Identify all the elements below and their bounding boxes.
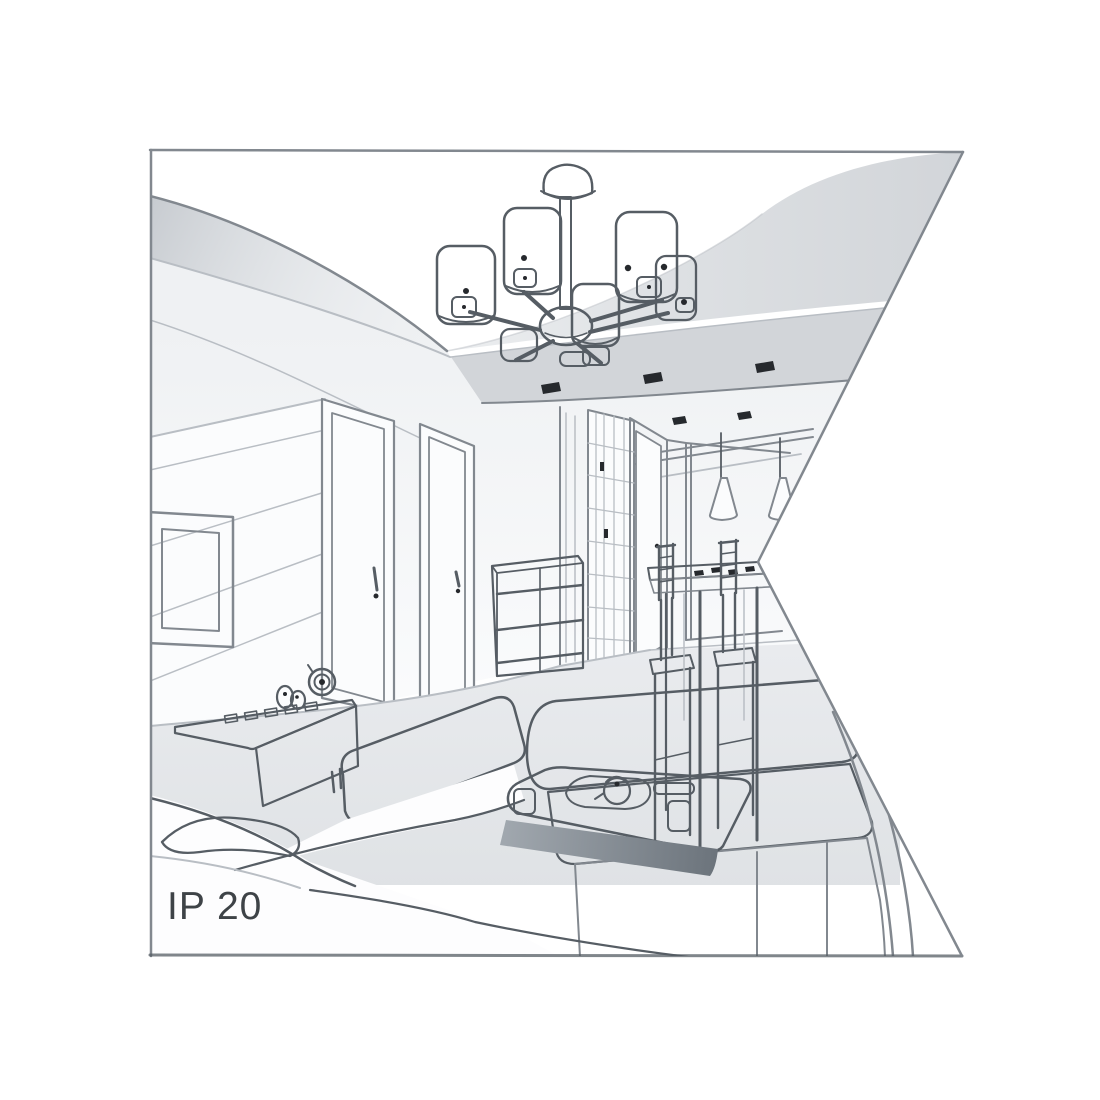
interior-door-2 xyxy=(420,424,474,706)
wardrobe xyxy=(588,410,634,663)
product-illustration-image: IP 20 xyxy=(0,0,1100,1100)
tv-wall-panel xyxy=(148,399,329,726)
door-handle-icon xyxy=(374,594,379,599)
room-line-drawing: IP 20 xyxy=(0,0,1100,1100)
lamp-shade xyxy=(437,246,495,324)
door-handle-icon xyxy=(456,589,460,593)
ip-rating-label: IP 20 xyxy=(167,885,262,928)
lamp-shade xyxy=(504,208,561,294)
ceiling-canopy xyxy=(544,165,593,198)
interior-door-1 xyxy=(322,399,394,714)
